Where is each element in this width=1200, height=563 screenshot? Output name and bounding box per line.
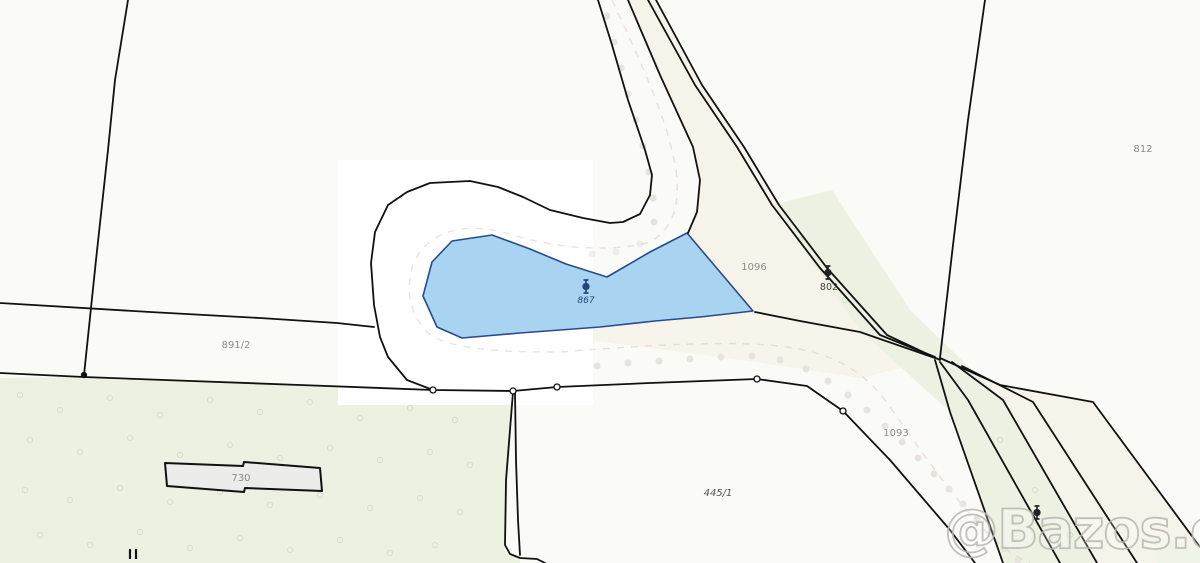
cadastral-map-canvas[interactable]: 891/2 730 445/1 1096 1093 812 802 867 @B… [0,0,1200,563]
parcel-label-812: 812 [1133,144,1152,155]
watermark: @Bazos.cz [944,498,1200,561]
parcel-label-445-1: 445/1 [704,488,733,499]
parcel-label-1093: 1093 [883,428,908,439]
parcel-label-1096: 1096 [741,262,766,273]
parcel-label-867: 867 [577,296,594,306]
parcel-label-730: 730 [231,473,250,484]
parcel-label-891-2: 891/2 [222,340,251,351]
parcel-label-802: 802 [820,282,838,293]
